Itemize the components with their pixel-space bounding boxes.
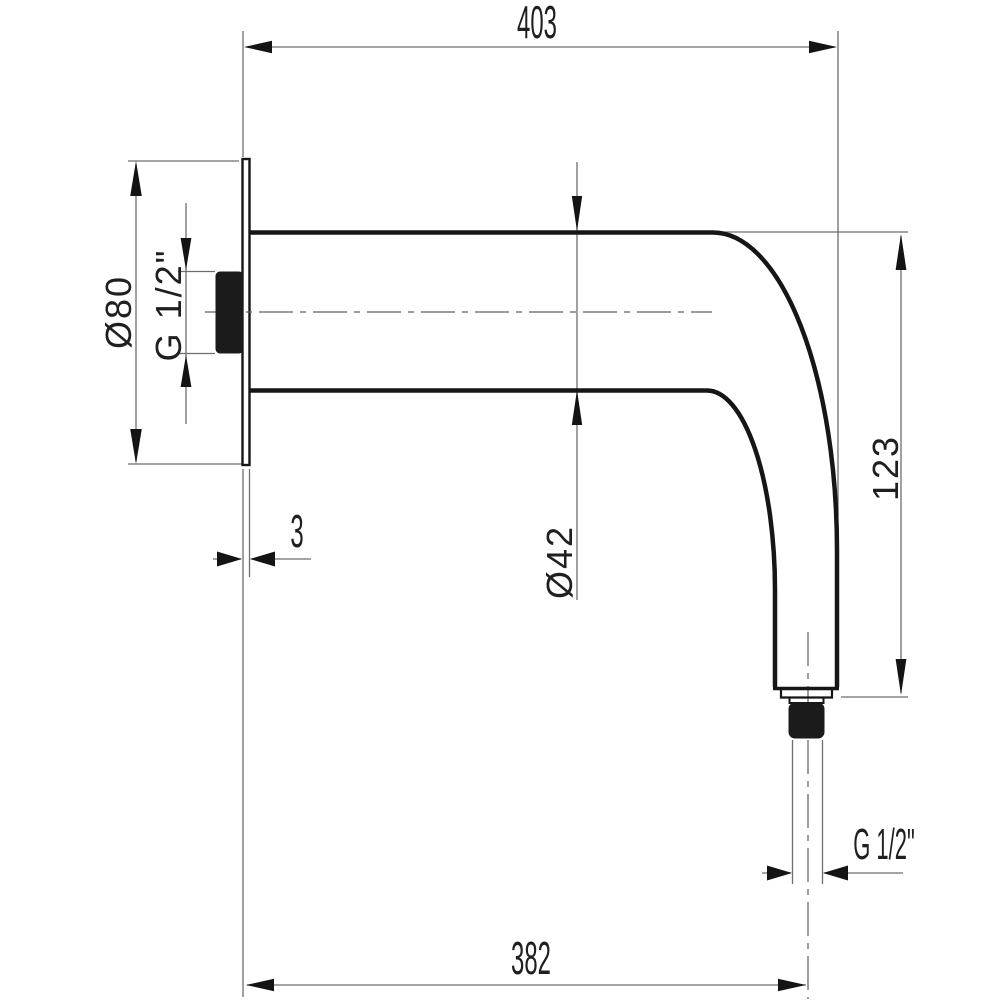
inlet-thread-nipple — [216, 272, 243, 353]
label-arm-diameter: Ø42 — [539, 525, 580, 599]
drawing-canvas: 403 382 3 G 1/2" Ø80 G 1/2" Ø42 123 — [0, 0, 1000, 1000]
shower-arm-technical-drawing: 403 382 3 G 1/2" Ø80 G 1/2" Ø42 123 — [0, 0, 1000, 1000]
label-inlet-thread: G 1/2" — [148, 249, 189, 362]
label-length-overall: 403 — [517, 0, 557, 48]
drawing-background — [0, 0, 1000, 1000]
outlet-thread-nipple — [789, 703, 824, 738]
label-flange-diameter: Ø80 — [98, 275, 139, 349]
label-outlet-thread: G 1/2" — [853, 821, 915, 869]
label-flange-thickness: 3 — [290, 506, 303, 557]
label-length-to-outlet: 382 — [511, 933, 551, 984]
label-drop-height: 123 — [865, 435, 906, 501]
